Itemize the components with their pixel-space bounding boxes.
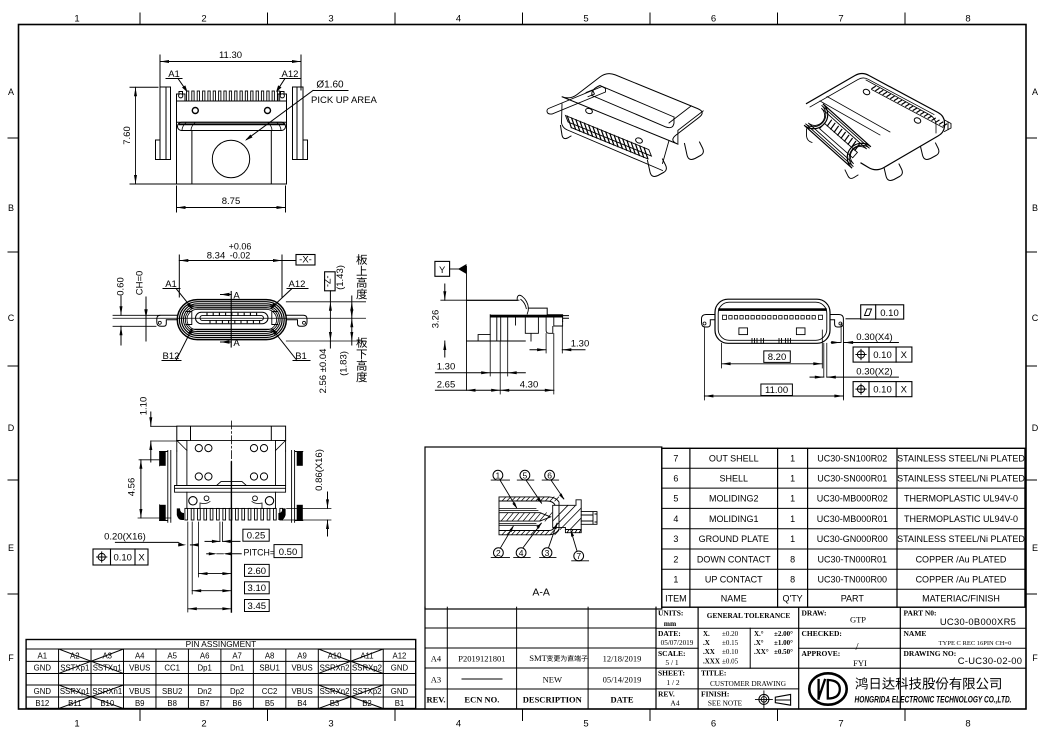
svg-text:7.60: 7.60 xyxy=(122,126,133,145)
svg-text:STAINLESS STEEL/Ni PLATED: STAINLESS STEEL/Ni PLATED xyxy=(897,473,1025,483)
svg-text:COPPER /Au PLATED: COPPER /Au PLATED xyxy=(916,554,1007,564)
svg-text:-0.02: -0.02 xyxy=(230,251,251,261)
svg-text:UC30-MB000R02: UC30-MB000R02 xyxy=(817,493,888,503)
svg-text:B4: B4 xyxy=(297,699,307,708)
svg-text:B9: B9 xyxy=(135,699,145,708)
svg-text:SMT: SMT xyxy=(529,653,547,663)
svg-text:B5: B5 xyxy=(265,699,275,708)
svg-text:SBU2: SBU2 xyxy=(162,687,182,696)
svg-text:B8: B8 xyxy=(167,699,177,708)
svg-text:Dn2: Dn2 xyxy=(198,687,212,696)
svg-text:3: 3 xyxy=(328,719,333,730)
svg-text:GND: GND xyxy=(34,663,52,672)
svg-text:7: 7 xyxy=(838,719,843,730)
svg-text:A9: A9 xyxy=(297,651,307,660)
svg-text:MOLIDING1: MOLIDING1 xyxy=(709,514,759,524)
svg-text:A1: A1 xyxy=(38,651,48,660)
svg-text:1.30: 1.30 xyxy=(437,362,456,373)
svg-text:VBUS: VBUS xyxy=(291,687,312,696)
svg-text:UP CONTACT: UP CONTACT xyxy=(705,574,763,584)
svg-text:D: D xyxy=(1032,423,1039,433)
svg-text:.XXX: .XXX xyxy=(703,657,720,665)
svg-text:B12: B12 xyxy=(35,699,49,708)
svg-text:NAME: NAME xyxy=(904,629,927,638)
svg-text:E: E xyxy=(8,543,14,553)
svg-text:B3: B3 xyxy=(330,699,340,708)
svg-text:GTP: GTP xyxy=(850,615,866,625)
svg-text:7: 7 xyxy=(576,551,581,561)
svg-text:A5: A5 xyxy=(167,651,177,660)
svg-text:3: 3 xyxy=(673,534,678,544)
svg-text:Y: Y xyxy=(439,265,446,276)
svg-text:A3: A3 xyxy=(431,675,441,685)
svg-text:A8: A8 xyxy=(265,651,275,660)
svg-text:7: 7 xyxy=(673,453,678,463)
svg-text:GROUND PLATE: GROUND PLATE xyxy=(699,534,769,544)
svg-text:±0.10: ±0.10 xyxy=(722,648,739,656)
svg-text:3.26: 3.26 xyxy=(431,310,442,329)
svg-text:D: D xyxy=(8,423,15,433)
svg-text:TYPE C REC 16PIN CH=0: TYPE C REC 16PIN CH=0 xyxy=(939,640,1012,647)
svg-text:VBUS: VBUS xyxy=(129,687,150,696)
svg-text:A2: A2 xyxy=(70,651,80,660)
svg-text:.XX: .XX xyxy=(703,648,715,656)
svg-text:X.: X. xyxy=(703,630,710,638)
svg-text:(1.83): (1.83) xyxy=(339,351,350,376)
svg-text:5: 5 xyxy=(673,493,678,503)
svg-text:UC30-SN000R01: UC30-SN000R01 xyxy=(817,473,887,483)
svg-text:C-UC30-02-00: C-UC30-02-00 xyxy=(958,655,1023,666)
svg-text:5: 5 xyxy=(523,471,528,481)
svg-text:A: A xyxy=(233,338,240,349)
svg-text:0.25: 0.25 xyxy=(247,531,266,542)
svg-text:A7: A7 xyxy=(232,651,242,660)
svg-text:4.56: 4.56 xyxy=(127,478,138,497)
svg-text:GND: GND xyxy=(391,663,409,672)
svg-text:X.°: X.° xyxy=(754,630,764,638)
svg-text:0.50: 0.50 xyxy=(279,547,298,558)
svg-text:8.75: 8.75 xyxy=(222,196,241,207)
svg-text:05/14/2019: 05/14/2019 xyxy=(603,675,642,685)
svg-text:B7: B7 xyxy=(200,699,210,708)
svg-text:UC30-0B000XR5: UC30-0B000XR5 xyxy=(940,616,1016,627)
svg-text:6: 6 xyxy=(547,471,552,481)
svg-text:.X: .X xyxy=(703,639,710,647)
svg-text:B1: B1 xyxy=(395,699,405,708)
svg-text:E: E xyxy=(1032,543,1038,553)
svg-text:X: X xyxy=(901,385,908,396)
svg-text:THERMOPLASTIC UL94V-0: THERMOPLASTIC UL94V-0 xyxy=(904,514,1018,524)
svg-text:12/18/2019: 12/18/2019 xyxy=(603,654,642,664)
svg-text:VBUS: VBUS xyxy=(291,663,312,672)
svg-text:GENERAL TOLERANCE: GENERAL TOLERANCE xyxy=(707,611,791,620)
svg-text:-X-: -X- xyxy=(299,255,312,266)
svg-text:OUT SHELL: OUT SHELL xyxy=(709,453,759,463)
svg-text:11.30: 11.30 xyxy=(219,50,242,61)
svg-text:A4: A4 xyxy=(135,651,145,660)
svg-text:APPROVE:: APPROVE: xyxy=(802,649,841,658)
svg-text:MOLIDING2: MOLIDING2 xyxy=(709,493,759,503)
svg-text:8: 8 xyxy=(790,574,795,584)
svg-text:REV.: REV. xyxy=(658,690,675,699)
svg-text:0.10: 0.10 xyxy=(873,350,892,361)
svg-text:DATE:: DATE: xyxy=(658,629,681,638)
svg-text:3.45: 3.45 xyxy=(248,601,267,612)
svg-text:FINISH:: FINISH: xyxy=(701,690,729,699)
svg-text:4: 4 xyxy=(673,514,678,524)
svg-text:UC30-GN000R00: UC30-GN000R00 xyxy=(817,534,888,544)
svg-text:VBUS: VBUS xyxy=(129,663,150,672)
svg-text:6: 6 xyxy=(711,719,716,730)
svg-text:5: 5 xyxy=(583,14,588,25)
svg-text:/: / xyxy=(855,641,859,653)
svg-text:2.56 ±0.04: 2.56 ±0.04 xyxy=(318,349,329,394)
svg-text:C: C xyxy=(1032,313,1039,323)
svg-text:SCALE:: SCALE: xyxy=(658,649,686,658)
svg-text:REV.: REV. xyxy=(427,695,446,705)
svg-text:1.30: 1.30 xyxy=(571,338,590,349)
svg-text:B11: B11 xyxy=(68,699,81,708)
svg-text:8.34: 8.34 xyxy=(207,251,226,262)
svg-text:TITLE:: TITLE: xyxy=(701,669,726,678)
svg-text:6: 6 xyxy=(711,14,716,25)
svg-text:COPPER /Au PLATED: COPPER /Au PLATED xyxy=(916,574,1007,584)
svg-text:SEE NOTE: SEE NOTE xyxy=(708,699,743,708)
svg-text:2: 2 xyxy=(201,14,206,25)
svg-text:FYI: FYI xyxy=(853,658,867,668)
svg-text:DRAWING NO:: DRAWING NO: xyxy=(904,649,957,658)
svg-text:Dp2: Dp2 xyxy=(230,687,244,696)
svg-text:CC1: CC1 xyxy=(164,663,180,672)
svg-text:UC30-SN100R02: UC30-SN100R02 xyxy=(817,453,887,463)
svg-text:HONGRIDA ELECTRONIC TECHNOLOGY: HONGRIDA ELECTRONIC TECHNOLOGY CO.,LTD. xyxy=(855,695,1012,705)
svg-text:A: A xyxy=(1032,87,1038,97)
svg-text:5 / 1: 5 / 1 xyxy=(665,658,679,667)
svg-text:0.10: 0.10 xyxy=(873,385,892,396)
svg-text:A: A xyxy=(8,87,14,97)
svg-text:1: 1 xyxy=(790,453,795,463)
svg-text:1: 1 xyxy=(790,473,795,483)
svg-text:A3: A3 xyxy=(102,651,112,660)
svg-text:UNITS:: UNITS: xyxy=(658,609,683,618)
svg-text:X: X xyxy=(138,553,145,564)
svg-text:ITEM: ITEM xyxy=(665,593,687,603)
svg-text:STAINLESS STEEL/Ni PLATED: STAINLESS STEEL/Ni PLATED xyxy=(897,453,1025,463)
svg-text:SBU1: SBU1 xyxy=(259,663,279,672)
svg-text:MATERIAC/FINISH: MATERIAC/FINISH xyxy=(922,593,1000,603)
svg-text:±1.00°: ±1.00° xyxy=(774,639,793,647)
svg-text:1: 1 xyxy=(790,514,795,524)
svg-text:0.20(X16): 0.20(X16) xyxy=(104,532,146,543)
svg-text:CUSTOMER DRAWING: CUSTOMER DRAWING xyxy=(710,679,787,688)
svg-text:0.86(X16): 0.86(X16) xyxy=(314,449,325,491)
svg-text:2.65: 2.65 xyxy=(437,379,456,390)
svg-text:3.10: 3.10 xyxy=(248,583,267,594)
svg-text:±0.20: ±0.20 xyxy=(722,630,739,638)
svg-text:8.20: 8.20 xyxy=(768,352,787,363)
svg-text:A12: A12 xyxy=(393,651,407,660)
svg-text:PIN ASSINGMENT: PIN ASSINGMENT xyxy=(186,639,257,649)
svg-text:ECN NO.: ECN NO. xyxy=(464,695,499,705)
svg-text:NEW: NEW xyxy=(543,675,562,685)
svg-text:C: C xyxy=(8,313,15,323)
svg-text:2: 2 xyxy=(201,719,206,730)
svg-text:2.60: 2.60 xyxy=(248,566,267,577)
svg-text:P2019121801: P2019121801 xyxy=(458,654,505,664)
svg-text:5: 5 xyxy=(583,719,588,730)
svg-text:6: 6 xyxy=(673,473,678,483)
svg-text:GND: GND xyxy=(34,687,52,696)
svg-text:(1.43): (1.43) xyxy=(335,265,346,290)
svg-text:A6: A6 xyxy=(200,651,210,660)
svg-text:1: 1 xyxy=(74,14,79,25)
svg-text:UC30-TN000R01: UC30-TN000R01 xyxy=(818,554,888,564)
svg-text:B: B xyxy=(1032,203,1038,213)
svg-text:0.60: 0.60 xyxy=(116,277,127,296)
svg-text:mm: mm xyxy=(664,619,677,628)
svg-text:CH=0: CH=0 xyxy=(135,271,146,296)
svg-text:8: 8 xyxy=(965,14,970,25)
svg-text:4: 4 xyxy=(456,719,461,730)
svg-text:DESCRIPTION: DESCRIPTION xyxy=(523,695,583,705)
svg-text:0.10: 0.10 xyxy=(880,308,899,319)
svg-text:CC2: CC2 xyxy=(262,687,278,696)
svg-text:STAINLESS STEEL/Ni PLATED: STAINLESS STEEL/Ni PLATED xyxy=(897,534,1025,544)
svg-text:B2: B2 xyxy=(362,699,372,708)
svg-text:GND: GND xyxy=(391,687,409,696)
svg-text:2: 2 xyxy=(496,548,501,558)
svg-text:4: 4 xyxy=(519,548,524,558)
svg-text:1 / 2: 1 / 2 xyxy=(666,678,680,687)
svg-text:±2.00°: ±2.00° xyxy=(774,630,793,638)
svg-text:3: 3 xyxy=(545,548,550,558)
svg-text:DATE: DATE xyxy=(611,695,634,705)
svg-text:UC30-MB000R01: UC30-MB000R01 xyxy=(817,514,888,524)
svg-text:B10: B10 xyxy=(100,699,115,708)
svg-text:±0.05: ±0.05 xyxy=(722,657,739,665)
svg-text:4: 4 xyxy=(456,14,461,25)
svg-text:A: A xyxy=(233,291,240,302)
svg-text:UC30-TN000R00: UC30-TN000R00 xyxy=(818,574,888,584)
svg-text:.XX°: .XX° xyxy=(754,648,769,656)
svg-text:CHECKED:: CHECKED: xyxy=(802,629,842,638)
svg-text:.X°: .X° xyxy=(754,639,764,647)
svg-text:A11: A11 xyxy=(360,651,373,660)
svg-text:DRAW:: DRAW: xyxy=(802,609,827,618)
svg-text:A4: A4 xyxy=(431,654,442,664)
svg-text:A-A: A-A xyxy=(532,587,550,599)
svg-text:F: F xyxy=(1032,653,1038,663)
svg-text:NAME: NAME xyxy=(721,593,747,603)
svg-text:3: 3 xyxy=(328,14,333,25)
svg-text:SHELL: SHELL xyxy=(719,473,748,483)
svg-text:4.30: 4.30 xyxy=(520,379,539,390)
svg-text:0.30(X2): 0.30(X2) xyxy=(856,366,892,377)
svg-text:X: X xyxy=(901,350,908,361)
svg-text:1: 1 xyxy=(74,719,79,730)
svg-text:1: 1 xyxy=(496,471,501,481)
svg-text:1.10: 1.10 xyxy=(139,397,150,416)
svg-text:Dp1: Dp1 xyxy=(198,663,212,672)
svg-text:PART N0:: PART N0: xyxy=(904,609,937,618)
svg-text:PITCH=: PITCH= xyxy=(244,548,276,558)
svg-text:Dn1: Dn1 xyxy=(230,663,244,672)
svg-text:05/07/2019: 05/07/2019 xyxy=(661,639,694,647)
svg-text:F: F xyxy=(8,653,14,663)
svg-text:0.10: 0.10 xyxy=(113,553,132,564)
svg-text:DOWN CONTACT: DOWN CONTACT xyxy=(697,554,771,564)
svg-text:±0.15: ±0.15 xyxy=(722,639,739,647)
svg-text:-Z-: -Z- xyxy=(323,276,333,288)
svg-text:0.30(X4): 0.30(X4) xyxy=(856,332,892,343)
svg-text:B: B xyxy=(8,203,14,213)
svg-text:8: 8 xyxy=(965,719,970,730)
svg-text:PICK UP AREA: PICK UP AREA xyxy=(311,95,377,106)
svg-text:1: 1 xyxy=(790,534,795,544)
svg-text:2: 2 xyxy=(673,554,678,564)
svg-text:B6: B6 xyxy=(232,699,242,708)
svg-text:±0.50°: ±0.50° xyxy=(774,648,793,656)
svg-text:SHEET:: SHEET: xyxy=(658,669,685,678)
svg-text:PART: PART xyxy=(841,593,865,603)
svg-text:A10: A10 xyxy=(328,651,343,660)
svg-text:8: 8 xyxy=(790,554,795,564)
svg-text:1: 1 xyxy=(790,493,795,503)
svg-text:7: 7 xyxy=(838,14,843,25)
svg-text:A4: A4 xyxy=(670,699,679,708)
svg-text:Q'TY: Q'TY xyxy=(782,593,802,603)
svg-text:1: 1 xyxy=(673,574,678,584)
svg-text:THERMOPLASTIC UL94V-0: THERMOPLASTIC UL94V-0 xyxy=(904,493,1018,503)
svg-text:11.00: 11.00 xyxy=(765,385,788,396)
svg-text:Ø1.60: Ø1.60 xyxy=(316,80,344,91)
